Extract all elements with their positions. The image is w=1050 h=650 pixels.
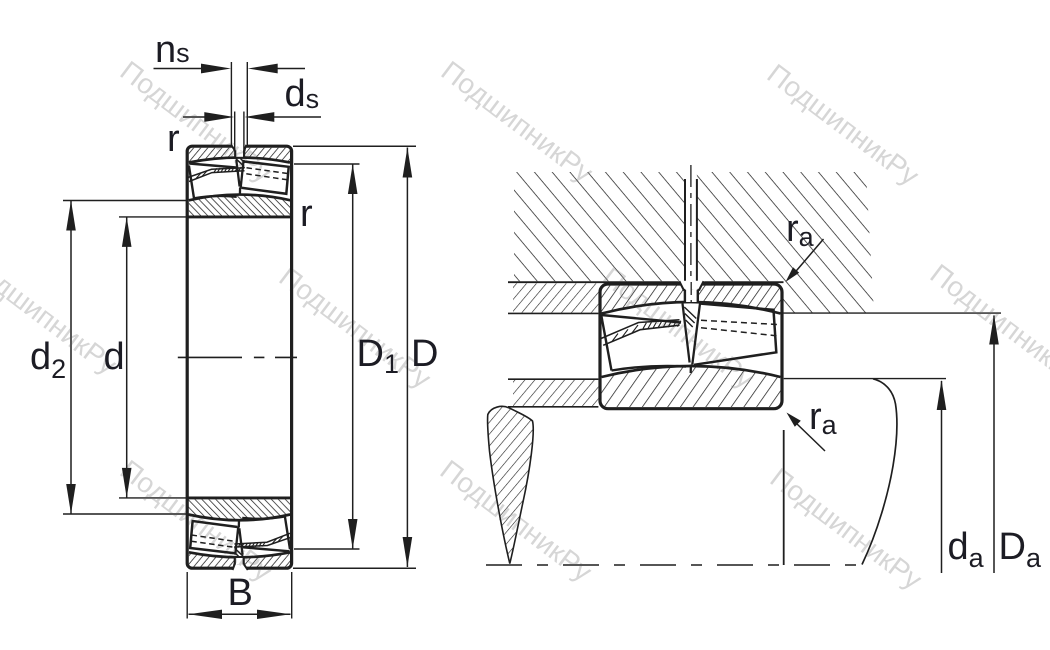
svg-text:r: r [300, 193, 313, 235]
